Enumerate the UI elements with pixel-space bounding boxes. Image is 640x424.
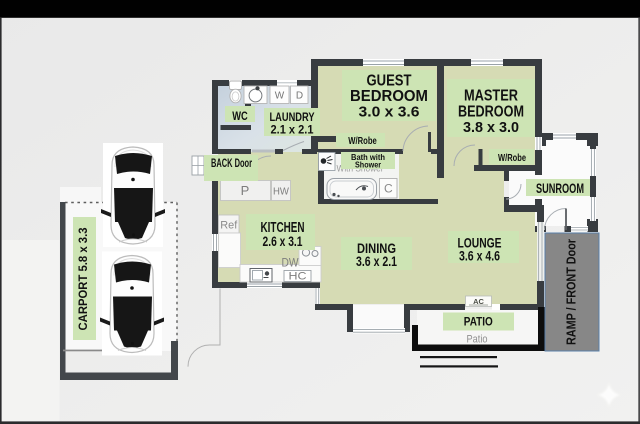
svg-text:HW: HW [273,187,290,198]
svg-text:BEDROOM: BEDROOM [458,104,524,121]
svg-text:3.6 x 2.1: 3.6 x 2.1 [356,253,397,269]
svg-text:Shower: Shower [355,159,382,169]
svg-text:W/Robe: W/Robe [348,135,377,147]
svg-text:CARPORT 5.8 x 3.3: CARPORT 5.8 x 3.3 [78,228,90,331]
svg-text:RAMP / FRONT Door: RAMP / FRONT Door [563,239,578,345]
svg-text:PATIO: PATIO [464,317,493,329]
svg-text:HC: HC [289,271,307,283]
svg-text:2.1 x 2.1: 2.1 x 2.1 [271,123,314,137]
svg-text:DW: DW [282,256,300,270]
svg-text:P: P [241,183,250,198]
svg-text:C: C [384,182,393,196]
svg-text:Patio: Patio [467,334,488,346]
svg-text:BACK Door: BACK Door [211,158,252,170]
svg-text:D: D [296,91,303,102]
svg-text:3.0 x 3.6: 3.0 x 3.6 [359,104,420,121]
svg-text:W: W [275,91,285,102]
svg-text:2.6 x 3.1: 2.6 x 3.1 [263,233,303,249]
svg-text:WC: WC [232,109,248,123]
svg-text:SUNROOM: SUNROOM [536,180,584,196]
svg-text:Ref: Ref [220,220,238,232]
svg-text:MASTER: MASTER [464,88,518,105]
svg-text:3.8 x 3.0: 3.8 x 3.0 [463,119,519,136]
svg-text:3.6 x 4.6: 3.6 x 4.6 [459,247,500,263]
svg-text:GUEST: GUEST [367,72,412,89]
svg-text:W/Robe: W/Robe [498,152,526,164]
svg-text:BEDROOM: BEDROOM [350,88,428,105]
